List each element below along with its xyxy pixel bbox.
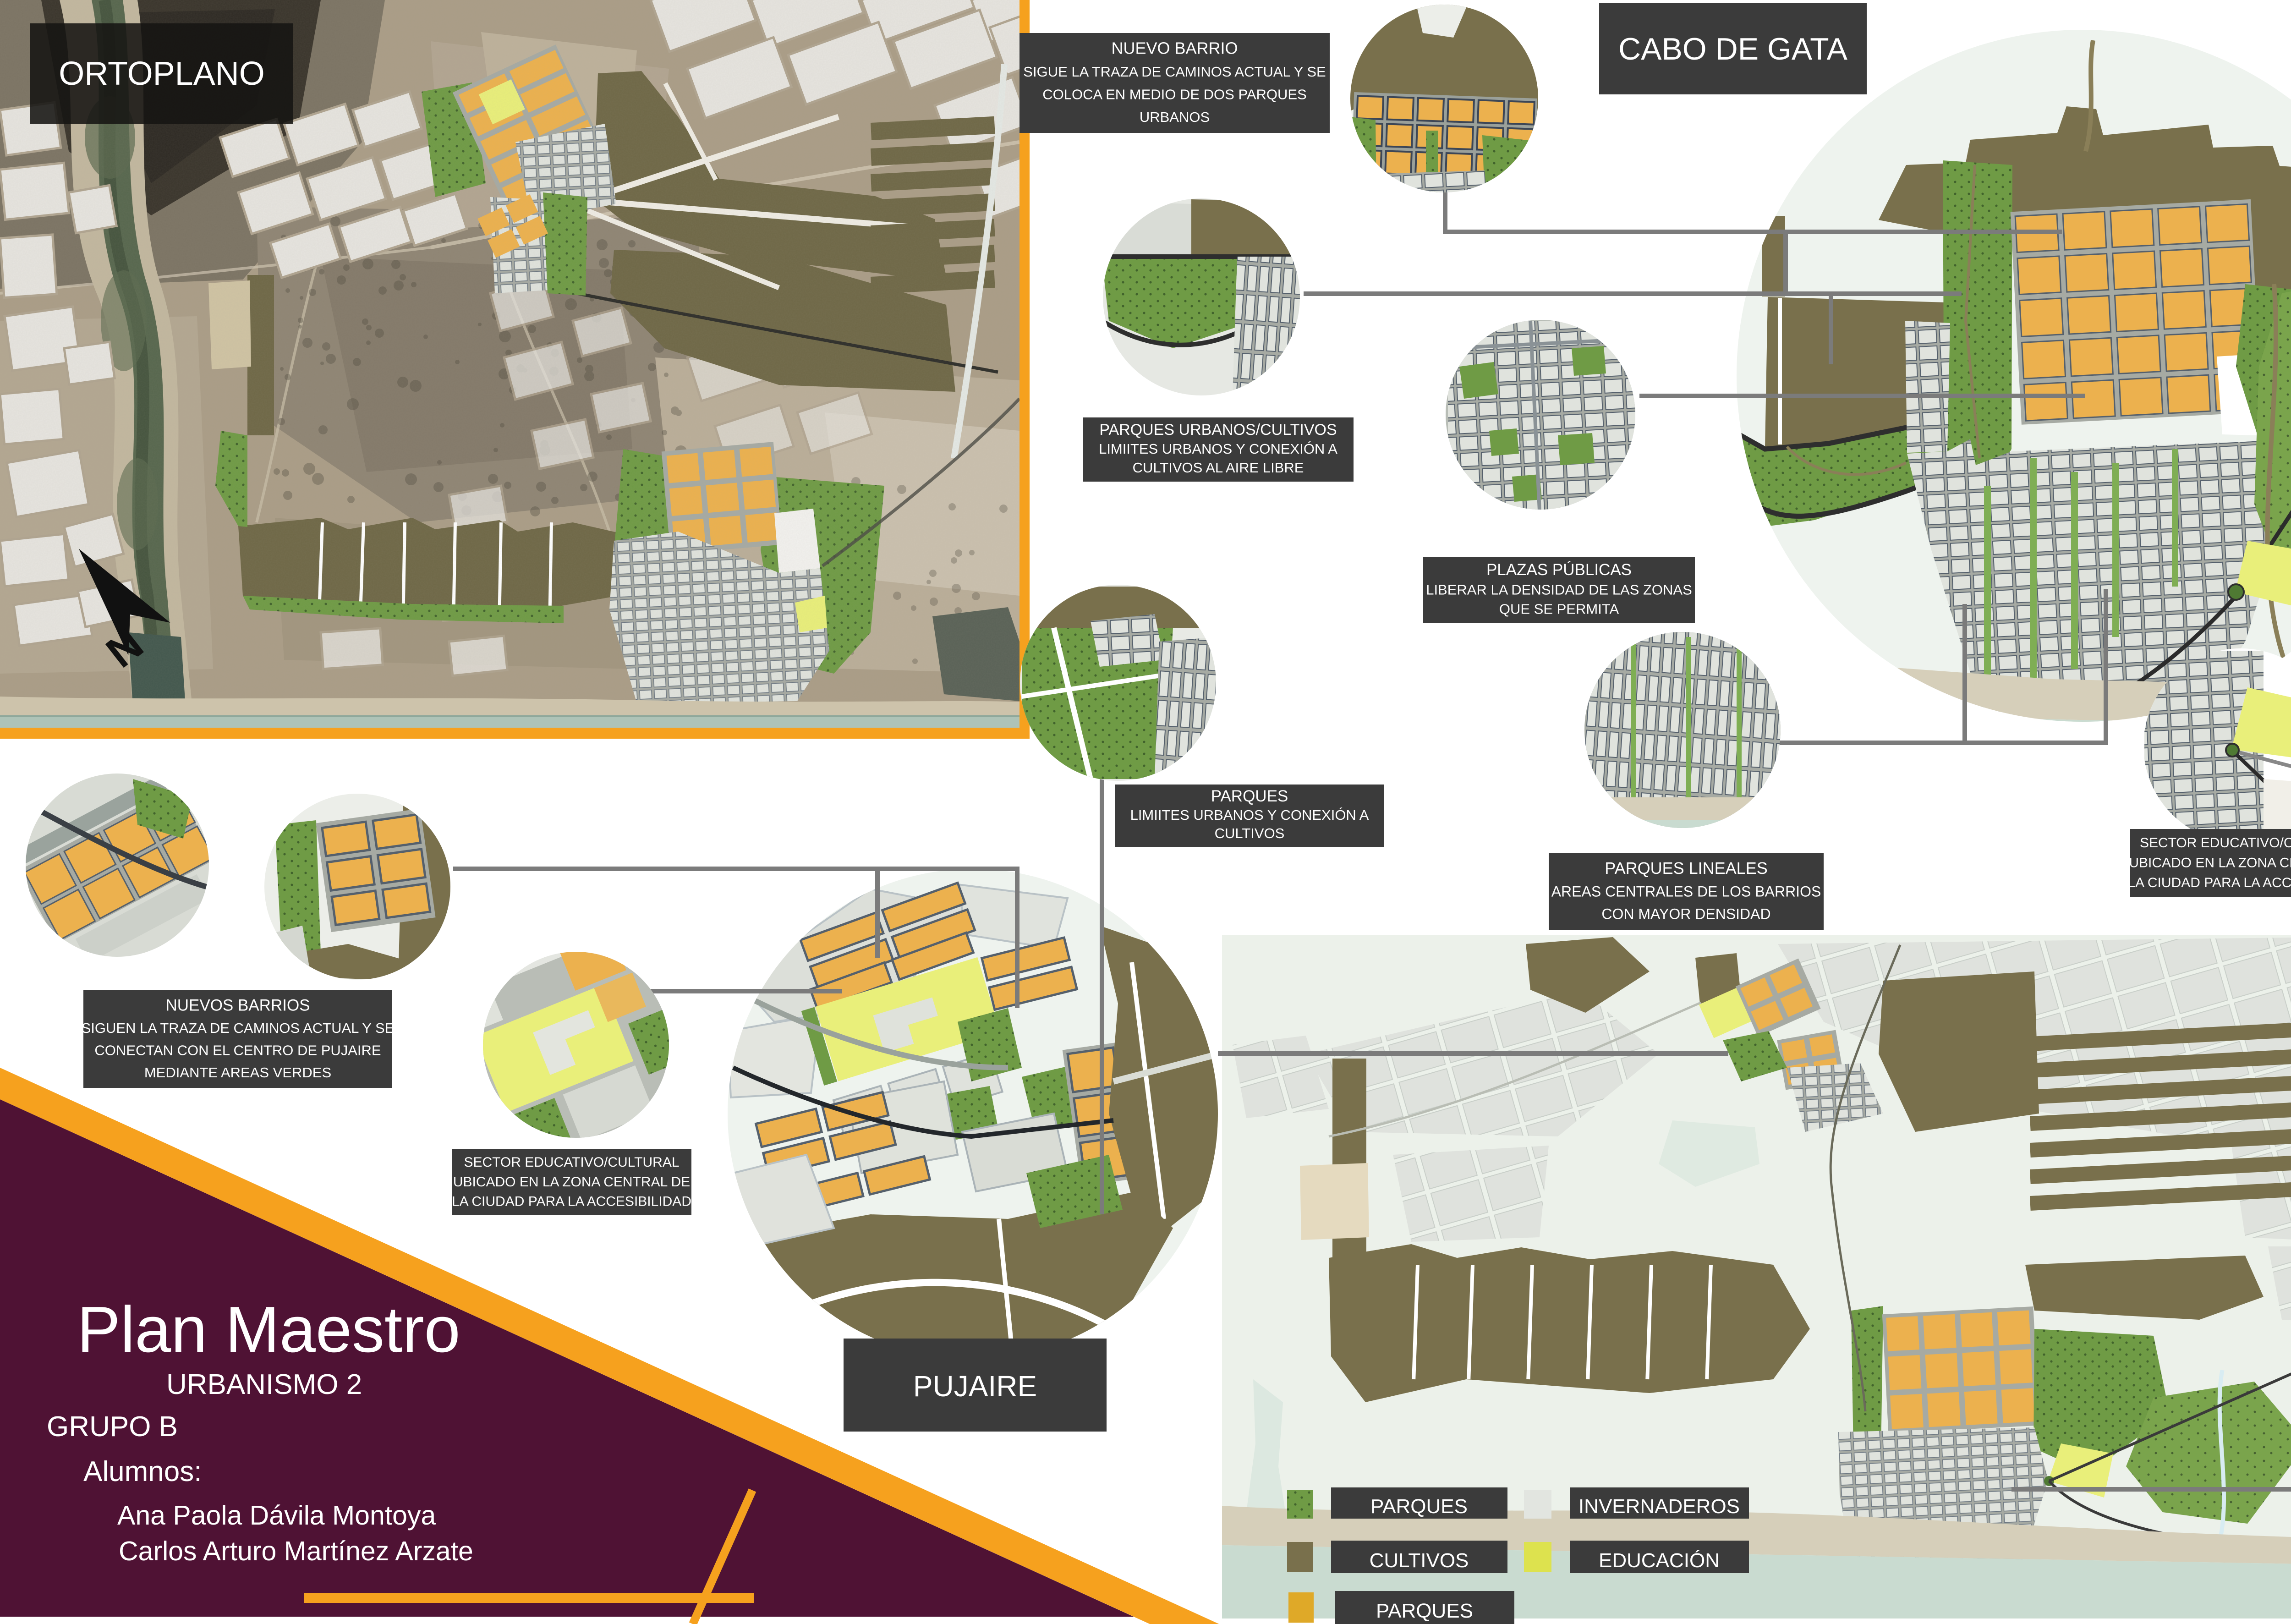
svg-text:PARQUES: PARQUES	[1376, 1600, 1473, 1622]
svg-text:SIGUEN LA TRAZA DE CAMINOS ACT: SIGUEN LA TRAZA DE CAMINOS ACTUAL Y SE	[82, 1020, 395, 1036]
svg-text:GRUPO B: GRUPO B	[47, 1411, 178, 1443]
svg-text:UBICADO EN LA ZONA CENTRAL DE: UBICADO EN LA ZONA CENTRAL DE	[2129, 856, 2291, 871]
svg-text:PUJAIRE: PUJAIRE	[913, 1370, 1037, 1403]
svg-text:Plan Maestro: Plan Maestro	[77, 1293, 460, 1366]
svg-text:NUEVO BARRIO: NUEVO BARRIO	[1111, 39, 1238, 58]
svg-text:SIGUE LA TRAZA DE CAMINOS ACTU: SIGUE LA TRAZA DE CAMINOS ACTUAL Y SE	[1023, 64, 1326, 80]
svg-text:LA CIUDAD PARA LA ACCESIBILIDA: LA CIUDAD PARA LA ACCESIBILIDAD	[452, 1194, 691, 1209]
svg-text:AREAS CENTRALES DE LOS BARRIOS: AREAS CENTRALES DE LOS BARRIOS	[1551, 883, 1821, 900]
svg-text:ORTOPLANO: ORTOPLANO	[59, 55, 264, 92]
svg-text:LIBERAR LA DENSIDAD DE LAS ZON: LIBERAR LA DENSIDAD DE LAS ZONAS	[1426, 582, 1692, 598]
svg-text:LA CIUDAD PARA LA ACCESIBILIDA: LA CIUDAD PARA LA ACCESIBILIDAD	[2128, 875, 2291, 890]
svg-text:EDUCACIÓN: EDUCACIÓN	[1599, 1549, 1720, 1572]
svg-text:QUE SE PERMITA: QUE SE PERMITA	[1499, 601, 1619, 617]
svg-text:PARQUES URBANOS/CULTIVOS: PARQUES URBANOS/CULTIVOS	[1099, 421, 1337, 439]
svg-text:URBANISMO 2: URBANISMO 2	[166, 1369, 362, 1400]
svg-text:SECTOR EDUCATIVO/CULTURAL: SECTOR EDUCATIVO/CULTURAL	[2140, 835, 2291, 850]
svg-text:SECTOR EDUCATIVO/CULTURAL: SECTOR EDUCATIVO/CULTURAL	[464, 1155, 679, 1170]
svg-text:COLOCA EN MEDIO DE DOS PARQUES: COLOCA EN MEDIO DE DOS PARQUES	[1042, 87, 1306, 103]
svg-text:PARQUES LINEALES: PARQUES LINEALES	[1605, 859, 1767, 878]
svg-text:CULTIVOS: CULTIVOS	[1370, 1549, 1469, 1572]
svg-text:Ana Paola Dávila Montoya: Ana Paola Dávila Montoya	[117, 1500, 436, 1531]
svg-text:Carlos Arturo Martínez Arzate: Carlos Arturo Martínez Arzate	[119, 1536, 473, 1566]
svg-text:URBANOS: URBANOS	[1140, 109, 1210, 125]
svg-text:UBICADO EN LA ZONA CENTRAL DE: UBICADO EN LA ZONA CENTRAL DE	[453, 1174, 690, 1190]
svg-text:CULTIVOS: CULTIVOS	[1215, 825, 1285, 841]
svg-text:PARQUES: PARQUES	[1211, 787, 1288, 805]
svg-text:CULTIVOS AL AIRE LIBRE: CULTIVOS AL AIRE LIBRE	[1133, 460, 1304, 476]
svg-text:LIMIITES URBANOS Y CONEXIÓN A: LIMIITES URBANOS Y CONEXIÓN A	[1099, 441, 1337, 457]
svg-text:PLAZAS PÚBLICAS: PLAZAS PÚBLICAS	[1486, 561, 1632, 579]
svg-text:LIMIITES URBANOS Y CONEXIÓN A: LIMIITES URBANOS Y CONEXIÓN A	[1130, 807, 1369, 823]
svg-text:MEDIANTE AREAS VERDES: MEDIANTE AREAS VERDES	[144, 1064, 331, 1081]
svg-text:CABO DE GATA: CABO DE GATA	[1618, 32, 1848, 66]
svg-text:INVERNADEROS: INVERNADEROS	[1578, 1495, 1740, 1518]
svg-text:CONECTAN CON EL CENTRO DE PUJA: CONECTAN CON EL CENTRO DE PUJAIRE	[94, 1042, 381, 1058]
svg-text:PARQUES: PARQUES	[1370, 1495, 1468, 1518]
svg-text:CON MAYOR DENSIDAD: CON MAYOR DENSIDAD	[1601, 905, 1770, 922]
svg-text:NUEVOS BARRIOS: NUEVOS BARRIOS	[165, 997, 310, 1015]
svg-text:Alumnos:: Alumnos:	[83, 1456, 202, 1487]
